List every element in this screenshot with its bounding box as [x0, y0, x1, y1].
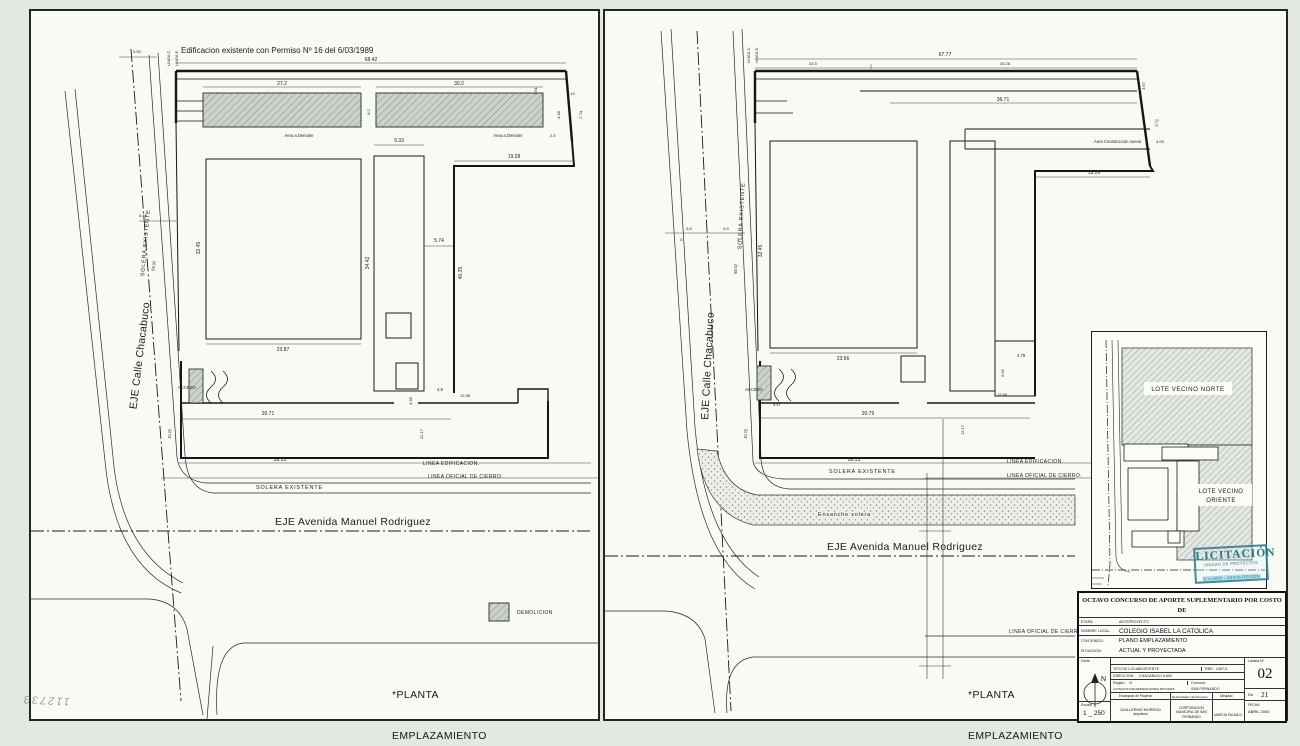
linea-oficial-label: LINEA OFICIAL DE CIERRO.: [1007, 473, 1082, 479]
dim-5832: 58.32: [150, 260, 156, 271]
legend-demolicion-label: DEMOLICION: [517, 610, 553, 616]
dim-438: 4.38: [556, 110, 561, 119]
dim-2071: 20.71: [262, 411, 275, 417]
row-nombre: NOMBRE LOCAL: COLEGIO ISABEL LA CATOLICA: [1079, 626, 1285, 636]
nombre-value: COLEGIO ISABEL LA CATOLICA: [1119, 628, 1213, 635]
caption-planta-propuesta: *PLANTA EMPLAZAMIENTO PROPUESTA: [968, 662, 1063, 746]
dim-top-b: 43.26: [1000, 61, 1011, 66]
fecha-label: FECHA: [1248, 703, 1260, 707]
linea-oficial-label-2: LINEA OFICIAL DE CIERRO.: [1009, 629, 1084, 635]
escala-cell: Escala 1 _ 250: [1079, 701, 1111, 721]
dibujado-value-cell: MARCIA PALMA D.: [1213, 700, 1245, 721]
dim-49: 4.9: [437, 387, 443, 392]
escala-label: Escala: [1081, 703, 1092, 707]
dim-574: 5.74: [434, 238, 444, 244]
direccion-row: DIRECCION: CHACABUCO # 600: [1111, 673, 1245, 680]
caption-line: EMPLAZAMIENTO: [392, 730, 487, 744]
dim-right-edge: 2.74: [577, 110, 583, 119]
licitacion-stamp: LICITACIÓN UNIDAD DE PROYECTOS D.A.MOP -…: [1193, 544, 1269, 584]
caption-line: *PLANTA: [968, 689, 1063, 703]
dim-3613: 36.13: [274, 457, 287, 463]
dibujado-value: MARCIA PALMA D.: [1213, 713, 1244, 717]
eje-avenida-label: EJE Avenida Manuel Rodriguez: [275, 516, 431, 528]
dim-demol2-w: 30.2: [454, 81, 464, 87]
compass-n: N: [1101, 676, 1106, 683]
dim-2079: 20.79: [862, 411, 875, 417]
desarrollador-header: Desarrollador del Proyecto: [1172, 695, 1208, 699]
dim-top-a: 24.5: [809, 61, 818, 66]
rbd-label: RBD:: [1201, 667, 1214, 671]
region-comuna-row: Región: VI LICITACION DE REPARACIONES MA…: [1111, 680, 1245, 693]
row-situacion: SITUACION: ACTUAL Y PROYECTADA: [1079, 647, 1285, 658]
street-lines: [31, 53, 598, 719]
situacion-value: ACTUAL Y PROYECTADA: [1119, 648, 1186, 654]
dim-933: 9.33: [394, 138, 404, 144]
desarrollador-value: CORPORACION MUNICIPAL DE SAN FERNANDO: [1171, 706, 1212, 719]
contenido-label: CONTENIDO:: [1081, 639, 1104, 643]
dim-court-w: 23.87: [277, 347, 290, 353]
etapa-label: ETAPA:: [1081, 620, 1093, 624]
dim-demol1-h: 8.2: [366, 108, 371, 114]
dim-219: 2.19: [567, 91, 576, 96]
permit-note: Edificacion existente con Permiso Nº 16 …: [181, 46, 374, 55]
dim-court-w: 23.66: [837, 356, 850, 362]
solera-existente-label: SOLERA EXISTENTE: [829, 469, 896, 475]
tipo-row: TIPO DE LOCAL: EXISTENTE RBD: 2467-6: [1111, 665, 1245, 673]
comuna-label: Comuna:: [1187, 681, 1206, 685]
dim-top-total: 68.42: [365, 57, 378, 63]
demolition-areas: [203, 93, 543, 127]
area-demoler-2: Area a Demoler: [493, 133, 523, 138]
de-value: 21: [1261, 690, 1269, 699]
scanned-site-plan: Edificacion existente con Permiso Nº 16 …: [0, 0, 1300, 746]
caption-line: *PLANTA: [392, 689, 487, 703]
inset-key-plan: LOTE VECINO NORTE LOTE VECINO ORIENTE LI…: [1091, 331, 1267, 589]
dim-left-v: 68.52: [733, 263, 739, 274]
region-label: Región:: [1113, 681, 1125, 685]
dim-55: 5.5: [686, 226, 692, 231]
caption-line: EMPLAZAMIENTO: [968, 730, 1063, 744]
lote-vecino-norte-label: LOTE VECINO NORTE: [1151, 386, 1224, 393]
situacion-label: SITUACION:: [1081, 649, 1102, 653]
dim-367: 3.67: [1141, 81, 1146, 90]
acceso-label: ACCESO: [745, 387, 763, 392]
dim-1928: 19.28: [508, 154, 521, 160]
desarrollador-header-cell: Desarrollador del Proyecto: [1171, 693, 1213, 700]
lamina-value: 02: [1245, 666, 1285, 683]
dim-3a: 3: [680, 237, 683, 242]
header-line: OCTAVO CONCURSO DE APORTE SUPLEMENTARIO …: [1079, 596, 1285, 616]
linea-c-label: LINEA C.: [166, 50, 171, 66]
linea-e-label: LINEA E.: [754, 47, 759, 63]
de-label: De: [1248, 692, 1253, 697]
lamina-label: Lamina Nº: [1248, 659, 1264, 663]
titleblock-header: OCTAVO CONCURSO DE APORTE SUPLEMENTARIO …: [1079, 593, 1285, 618]
row-etapa: ETAPA: ANTEPROYECTO: [1079, 618, 1285, 626]
encargado-title: Arquitecto: [1111, 712, 1170, 716]
dim-demol1-w: 27.2: [277, 81, 287, 87]
caption-planta-actual: *PLANTA EMPLAZAMIENTO ACTUAL: [392, 662, 487, 746]
lamina-cell: Lamina Nº 02 De 21 FECHA ABRIL 2000: [1245, 658, 1285, 721]
direccion-label: DIRECCION:: [1113, 674, 1134, 678]
dim-547: 5.47: [773, 402, 782, 407]
eje-calle-chacabuco: EJE Calle Chacabuco: [127, 301, 152, 410]
dim-1217: 12.17: [419, 428, 424, 439]
datos-header-cell: DATOS DEL LOCAL: [1111, 658, 1245, 665]
left-plan-drawing: Edificacion existente con Permiso Nº 16 …: [31, 11, 598, 719]
sheet-planta-propuesta: LINEA C. LINEA E. 67.77 24.5 43.26 36.71…: [603, 9, 1288, 721]
dim-right-edge: 3.72: [1153, 118, 1159, 127]
dim-1217: 12.17: [960, 424, 965, 435]
dibujado-header-cell: Dibujado: [1213, 693, 1245, 700]
linea-c-label: LINEA C.: [746, 47, 751, 63]
comuna-value: SAN FERNANDO: [1191, 687, 1220, 691]
handwritten-number: 112733: [22, 693, 70, 707]
linea-e-label: LINEA E.: [174, 50, 179, 66]
dim-court-h: 32.45: [758, 245, 764, 258]
dim-1258: 12.58: [460, 393, 471, 398]
stamp-line2: D.A.MOP - SEXTA REGION: [1202, 573, 1261, 581]
dibujado-header: Dibujado: [1220, 694, 1233, 698]
dim-665: 6.65: [1000, 368, 1005, 377]
rbd-value: 2467-6: [1216, 667, 1227, 671]
inset-centerline: [1106, 340, 1110, 587]
dim-narrow-h: 34.42: [365, 257, 371, 270]
licitacion-note: LICITACION DE REPARACIONES MAYORES: [1113, 687, 1175, 691]
contenido-value: PLANO EMPLAZAMIENTO: [1119, 638, 1187, 644]
dim-25: 2.5: [550, 133, 556, 138]
dim-court-h: 32.45: [196, 242, 202, 255]
eje-calle-chacabuco: EJE Calle Chacabuco: [699, 312, 717, 420]
dim-1025: 10.25: [743, 428, 749, 439]
dim-398: 3.98: [408, 396, 413, 405]
fecha-value: ABRIL 2000: [1248, 709, 1269, 714]
dim-4035: 40.35: [458, 267, 464, 280]
lote-vecino-oriente-label2: ORIENTE: [1206, 498, 1235, 504]
dim-590: 5.90: [133, 49, 142, 54]
eje-avenida-label: EJE Avenida Manuel Rodriguez: [827, 541, 983, 553]
area-demoler-1: Area a Demoler: [284, 133, 314, 138]
dim-3613: 36.13: [848, 457, 861, 463]
buildings: [206, 156, 424, 391]
solera-existente-vertical: SOLERA EXISTENTE: [737, 182, 746, 249]
dim-479: 4.79: [1017, 353, 1026, 358]
lot-boundary: [176, 71, 574, 458]
dim-top-total: 67.77: [939, 52, 952, 58]
encargado-header-cell: Encargado de Proyecto: [1111, 693, 1171, 700]
nombre-label: NOMBRE LOCAL:: [1081, 629, 1111, 633]
dim-1258: 12.58: [997, 392, 1008, 397]
acceso-label: ACCESO: [178, 385, 196, 390]
etapa-value: ANTEPROYECTO: [1119, 620, 1149, 624]
linea-edificacion-label: LINEA EDIFICACION.: [423, 461, 479, 467]
tipo-label: TIPO DE LOCAL:: [1113, 667, 1141, 671]
dim-area-nueva: 4.03: [1156, 139, 1165, 144]
solera-existente-label: SOLERA EXISTENTE: [256, 485, 323, 491]
norte-label: Norte: [1081, 659, 1090, 663]
encargado-value-cell: GUILLERMO MORENO Arquitecto: [1111, 700, 1171, 721]
lote-vecino-oriente-label: LOTE VECINO: [1199, 489, 1244, 495]
dimension-lines: [665, 59, 1165, 478]
buildings: [770, 141, 1035, 396]
linea-edificacion-label: LINEA EDIFICACION.: [1007, 459, 1063, 465]
tipo-value: EXISTENTE: [1139, 667, 1159, 671]
dim-361: 3.61: [533, 86, 538, 95]
title-block: OCTAVO CONCURSO DE APORTE SUPLEMENTARIO …: [1077, 591, 1287, 723]
encargado-header: Encargado de Proyecto: [1119, 694, 1152, 698]
escala-value: 1 _ 250: [1083, 710, 1105, 717]
linea-oficial-label: LINEA OFICIAL DE CIERRO.: [428, 474, 503, 480]
dim-1909: 19.09: [1088, 170, 1101, 176]
desarrollador-value-cell: CORPORACION MUNICIPAL DE SAN FERNANDO: [1171, 700, 1213, 721]
legend-demolicion: DEMOLICION: [489, 603, 553, 621]
ensanche-solera-label: Ensanche solera: [818, 512, 871, 518]
dim-69: 6.9: [723, 226, 729, 231]
access-area: [757, 366, 796, 401]
sheet-planta-actual: Edificacion existente con Permiso Nº 16 …: [29, 9, 600, 721]
region-value: VI: [1129, 681, 1132, 685]
dim-1025: 10.25: [167, 428, 173, 439]
dim-inner-w: 36.71: [997, 97, 1010, 103]
direccion-value: CHACABUCO # 600: [1139, 674, 1172, 678]
area-construccion-nueva: Area Construccion nueva: [1094, 139, 1142, 144]
row-contenido: CONTENIDO: PLANO EMPLAZAMIENTO: [1079, 636, 1285, 647]
